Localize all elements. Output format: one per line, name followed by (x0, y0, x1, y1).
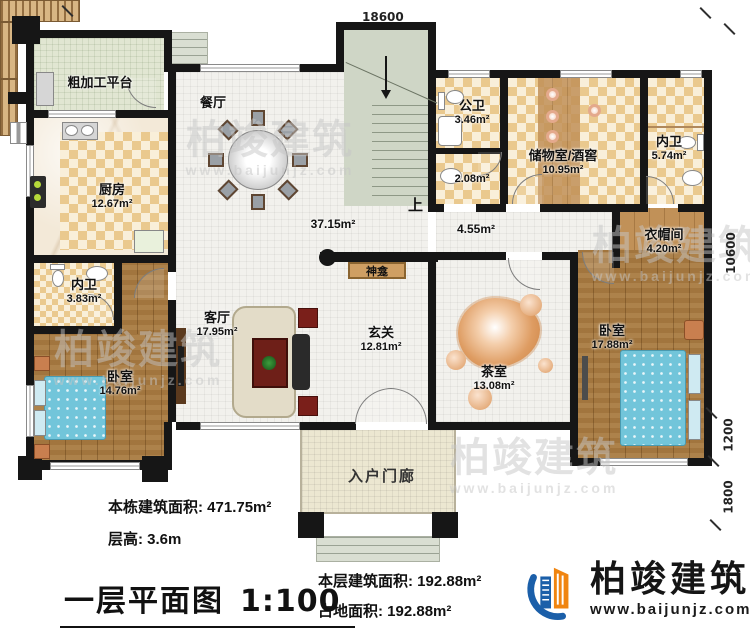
bed-right (620, 350, 686, 446)
wall-segment (432, 512, 458, 538)
dimension-tick (709, 519, 721, 531)
window (600, 458, 688, 466)
ceiling-lamp (588, 104, 601, 117)
wall-segment (298, 512, 324, 538)
nightstand-left-1 (34, 356, 50, 371)
wall-segment (428, 22, 436, 212)
stairs-up-label: 上 (408, 194, 423, 215)
wall-segment (704, 70, 712, 466)
room-label-kitchen: 厨房12.67m² (92, 183, 133, 210)
stair-arrow-head (381, 90, 391, 99)
floor-plan: 神龛 粗加工平台 餐厅 厨房12.67m² 内卫3.83m² 卧室14.76m²… (0, 0, 750, 636)
wall-segment (168, 262, 176, 272)
stair-treads (372, 100, 428, 204)
dimension-tick (723, 23, 735, 35)
room-label-dining: 餐厅 (200, 96, 226, 111)
stove-burner-2 (34, 194, 41, 201)
bed-right-pillow-2 (688, 400, 701, 440)
dimension-top: 18600 (362, 10, 404, 24)
side-table-top (298, 308, 318, 328)
dining-chair (208, 153, 224, 167)
exterior-steps (170, 32, 208, 64)
shrine-wall-dot (319, 249, 336, 266)
total-area-text: 本栋建筑面积: 471.75m² (108, 496, 271, 517)
tea-stool (520, 294, 542, 316)
armchair (292, 334, 310, 390)
window (48, 110, 116, 118)
dining-chair (251, 110, 265, 126)
wall-segment (428, 422, 578, 430)
toilet-inner-right-tank (697, 134, 704, 151)
storage-wood-band (538, 78, 580, 204)
brand-logo-icon (520, 560, 582, 622)
window (26, 385, 34, 437)
brand-name: 柏竣建筑 (590, 560, 750, 598)
dimension-right-mid: 1200 (722, 418, 736, 451)
room-label-bath-inner-right: 内卫5.74m² (652, 135, 687, 162)
wall-segment (8, 92, 28, 104)
room-label-platform: 粗加工平台 (67, 76, 132, 91)
room-label-cloakroom: 衣帽间4.20m² (644, 228, 683, 255)
wall-segment (428, 252, 436, 422)
ceiling-lamp (546, 110, 559, 123)
wall-segment (542, 252, 570, 260)
kitchen-sink-bowl-2 (81, 125, 94, 136)
dimension-tick (699, 7, 711, 19)
bed-left-pillow-2 (34, 410, 46, 436)
wall-segment (476, 204, 506, 212)
wall-segment (678, 204, 712, 212)
wall-segment (500, 78, 508, 204)
room-label-porch: 入户门廊 (348, 465, 416, 486)
shrine-table: 神龛 (348, 262, 406, 279)
wall-segment (26, 326, 122, 334)
stove-burner-1 (34, 181, 41, 188)
window (200, 64, 300, 72)
brand-text: 柏竣建筑 www.baijunjz.com (590, 560, 750, 618)
room-label-tea-room: 茶室13.08m² (474, 365, 515, 392)
dining-table (228, 130, 288, 190)
room-label-bedroom-right: 卧室17.88m² (592, 324, 633, 351)
tea-stool (538, 358, 553, 373)
wall-segment (142, 456, 168, 482)
toilet-inner-left-bowl (52, 270, 64, 287)
room-label-bedroom-left: 卧室14.76m² (100, 370, 141, 397)
dimension-right-total: 10600 (724, 232, 738, 274)
bed-left-pillow-1 (34, 380, 46, 406)
footprint-text: 占地面积: 192.88m² (318, 600, 451, 621)
fridge (134, 230, 164, 253)
plant (262, 356, 276, 370)
room-label-living: 客厅17.95m² (197, 311, 238, 338)
brand-logo-block: 柏竣建筑 www.baijunjz.com (520, 560, 750, 622)
floor-height-text: 层高: 3.6m (108, 528, 181, 549)
shrine-label: 神龛 (350, 264, 404, 280)
tea-stool (446, 350, 466, 370)
wash-area-label: 2.08m² (455, 173, 490, 185)
porch-steps (316, 536, 440, 562)
side-table-bottom (298, 396, 318, 416)
shower-line-right (648, 126, 704, 128)
window (200, 422, 300, 430)
ceiling-lamp (546, 88, 559, 101)
wall-segment (570, 422, 578, 466)
window (10, 122, 27, 144)
toilet-public-tank (438, 92, 445, 110)
dresser-right (684, 320, 704, 340)
bed-left (44, 376, 106, 440)
room-label-bath-inner-left: 内卫3.83m² (67, 278, 102, 305)
window (448, 70, 490, 78)
window (680, 70, 702, 78)
stair-direction-arrow (385, 56, 387, 92)
tv-screen (178, 346, 184, 386)
room-label-foyer: 玄关12.81m² (361, 326, 402, 353)
floor-area-text: 本层建筑面积: 192.88m² (318, 570, 481, 591)
wall-segment (436, 204, 444, 212)
dining-chair (292, 153, 308, 167)
wall-segment (320, 252, 438, 262)
dimension-right-bottom: 1800 (722, 480, 736, 513)
ceiling-lamp (546, 130, 559, 143)
kitchen-sink-bowl-1 (65, 125, 78, 136)
wall-segment (26, 30, 172, 38)
dining-chair (251, 194, 265, 210)
wall-segment (436, 252, 506, 260)
wall-segment (26, 255, 176, 263)
bedroom-tv-panel (582, 356, 588, 400)
window (560, 70, 612, 78)
wall-segment (168, 300, 176, 422)
plan-title: 一层平面图1:100 (60, 576, 355, 628)
bed-right-pillow-1 (688, 354, 701, 394)
room-label-bath-public: 公卫3.46m² (455, 99, 490, 126)
open-area-label: 37.15m² (311, 218, 356, 231)
wall-segment (570, 252, 578, 422)
room-label-storage: 储物室/酒窖10.95m² (529, 149, 598, 176)
wall-segment (168, 72, 176, 262)
nightstand-left-2 (34, 444, 50, 459)
wall-segment (540, 204, 648, 212)
platform-sink (36, 72, 54, 106)
wall-segment (114, 263, 122, 330)
window (50, 462, 140, 470)
sink-inner-right (682, 170, 703, 186)
brand-website: www.baijunjz.com (590, 601, 750, 618)
corridor-area-label: 4.55m² (457, 223, 495, 236)
wall-segment (18, 456, 42, 480)
